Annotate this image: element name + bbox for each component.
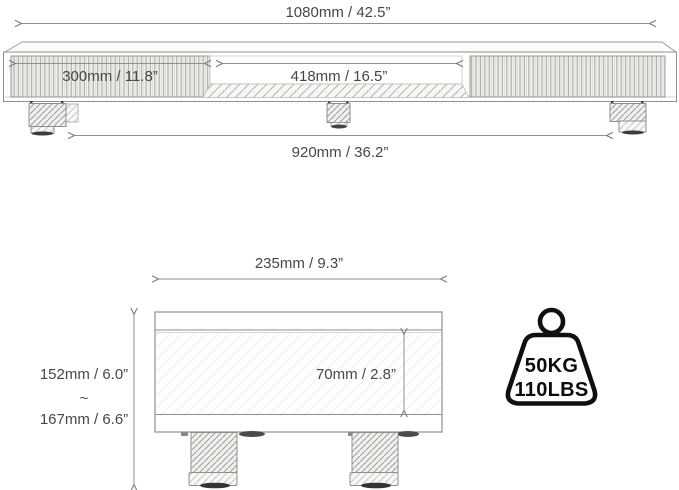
inner-height-label: 70mm / 2.8” (316, 366, 396, 383)
overall-height-dimension: 152mm / 6.0” ~ 167mm / 6.6” (40, 314, 134, 485)
left-compartment-label: 300mm / 11.8” (62, 68, 158, 85)
weight-kg-label: 50KG (525, 355, 578, 377)
height-range-separator: ~ (80, 390, 89, 407)
front-leg-middle (327, 104, 350, 129)
leg-span-dimension: 920mm / 36.2” (74, 136, 607, 162)
right-door-panel (470, 56, 665, 97)
middle-shelf-surface (203, 84, 469, 98)
side-leg-left (181, 431, 265, 488)
height-max-label: 167mm / 6.6” (40, 411, 128, 428)
diagram-svg: 1080mm / 42.5” 300mm / 11.8” 418mm / 16.… (0, 0, 679, 490)
weight-handle-ring (540, 310, 563, 333)
front-leg-left (29, 104, 78, 136)
depth-dimension: 235mm / 9.3” (158, 255, 441, 279)
side-leg-right (348, 431, 419, 488)
middle-compartment-label: 418mm / 16.5” (291, 68, 388, 85)
depth-label: 235mm / 9.3” (255, 255, 343, 272)
side-body-middle-section (156, 333, 441, 414)
tv-stand-front-view: 1080mm / 42.5” 300mm / 11.8” 418mm / 16.… (4, 4, 677, 161)
overall-width-dimension: 1080mm / 42.5” (21, 4, 650, 24)
overall-width-label: 1080mm / 42.5” (285, 4, 390, 21)
weight-capacity-icon: 50KG 110LBS (508, 310, 595, 404)
height-min-label: 152mm / 6.0” (40, 366, 128, 383)
tv-stand-side-view: 235mm / 9.3” 70mm / 2.8” 152mm / 6.0” ~ … (40, 255, 442, 488)
weight-lbs-label: 110LBS (514, 379, 588, 401)
front-leg-right (610, 104, 646, 135)
leg-span-label: 920mm / 36.2” (292, 144, 389, 161)
product-dimension-diagram: 1080mm / 42.5” 300mm / 11.8” 418mm / 16.… (0, 0, 679, 490)
cabinet-top-surface (5, 42, 676, 52)
